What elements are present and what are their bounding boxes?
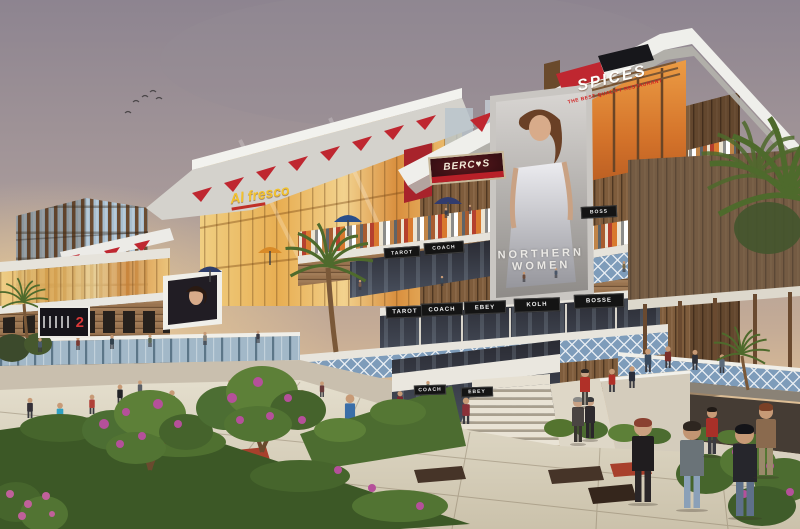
store-sign-tarot-ground: TAROT (386, 305, 424, 318)
mall-exterior-rendering: SPICES THE BEST QUALITY RESTAURANT BERC♥… (0, 0, 800, 529)
store-sign-coach-lower: COACH (414, 384, 446, 395)
store-sign-bosse-ground: BOSSE (574, 293, 624, 309)
store-sign-kolh-ground: KOLH (514, 297, 560, 313)
rendering-svg (0, 0, 800, 529)
store-sign-ebey-ground: EBEY (464, 300, 506, 314)
store-sign-boss-top: BOSS (581, 205, 618, 219)
store-sign-coach-ground: COACH (421, 302, 463, 316)
fashion-billboard (490, 84, 594, 306)
store-sign-ebey-lower: EBEY (461, 386, 493, 397)
